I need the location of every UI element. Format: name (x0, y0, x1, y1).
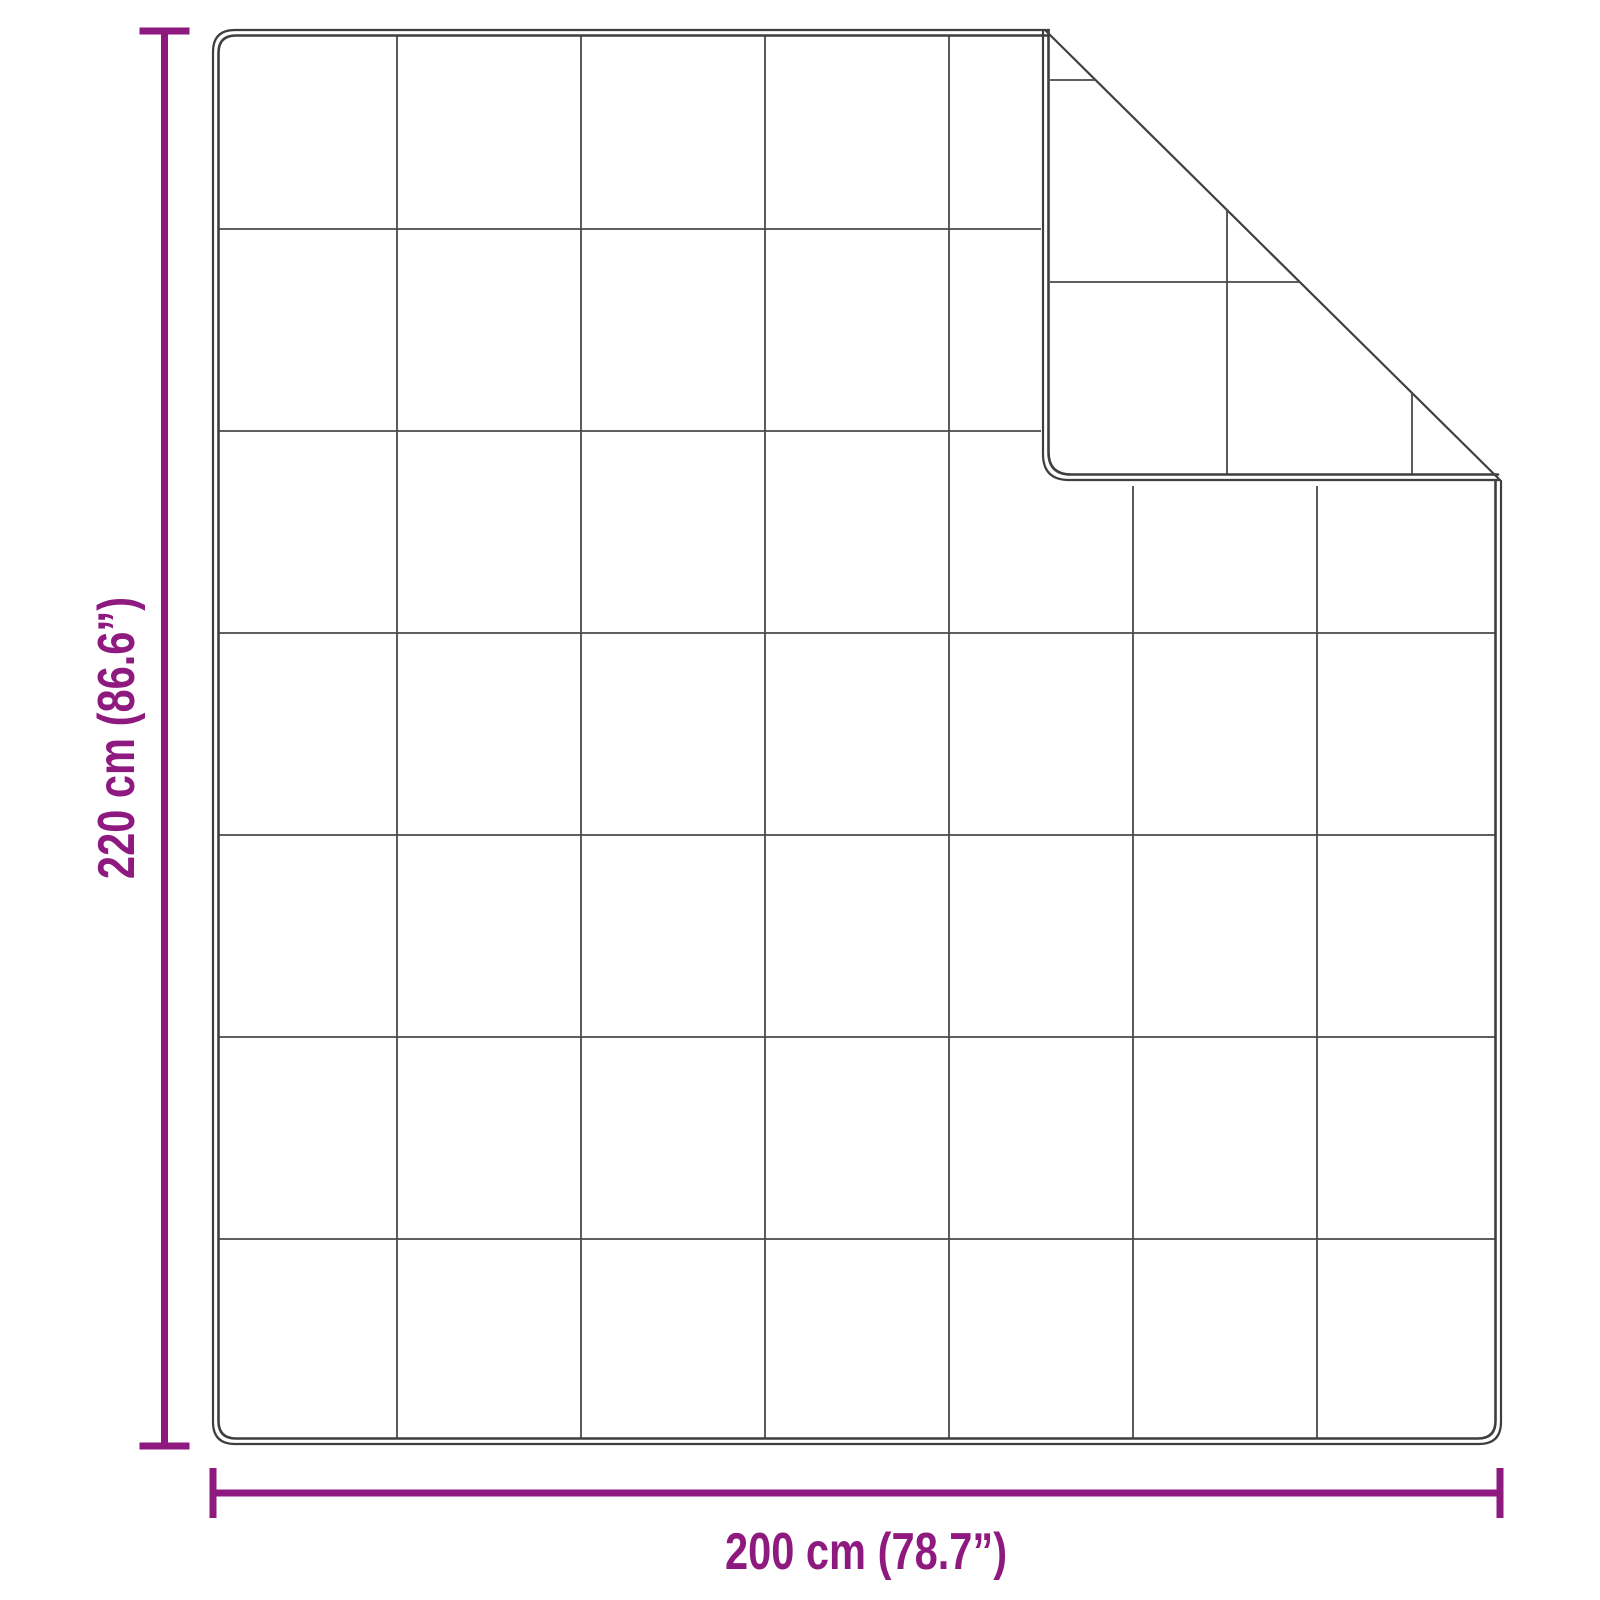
width-dimension-label: 200 cm (78.7”) (725, 1526, 1007, 1578)
blanket-outline-inner (219, 36, 1496, 1439)
fold-crease (1046, 31, 1499, 479)
blanket-front (213, 30, 1501, 1444)
height-dimension-label: 220 cm (86.6”) (91, 597, 143, 879)
height-dimension-line (140, 31, 190, 1446)
diagram-canvas: 220 cm (86.6”) 200 cm (78.7”) (0, 0, 1600, 1600)
blanket-diagram (0, 0, 1600, 1600)
flap-outline-inner (1049, 31, 1499, 475)
blanket-outline-outer (213, 30, 1501, 1444)
width-dimension-line (213, 1468, 1500, 1518)
